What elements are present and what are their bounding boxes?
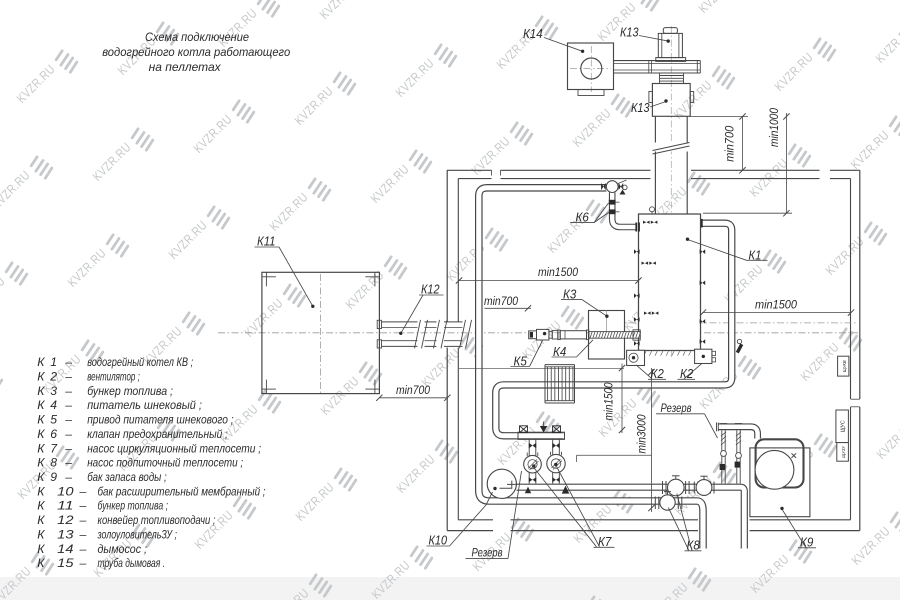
svg-text:конвейер топливоподачи ;: конвейер топливоподачи ; <box>98 513 216 527</box>
svg-text:ЩУЗУ: ЩУЗУ <box>841 445 846 458</box>
svg-text:К12: К12 <box>421 282 440 297</box>
svg-text:min1500: min1500 <box>538 265 578 279</box>
svg-text:бункер топлива ;: бункер топлива ; <box>98 499 169 513</box>
svg-text:–: – <box>79 542 87 556</box>
svg-text:–: – <box>64 456 72 470</box>
svg-text:на пеллетах: на пеллетах <box>149 60 222 74</box>
svg-text:насос циркуляционный теплосети: насос циркуляционный теплосети ; <box>87 441 261 455</box>
svg-text:min1000: min1000 <box>767 108 781 147</box>
svg-text:–: – <box>64 427 72 441</box>
svg-text:водогрейный котел КВ ;: водогрейный котел КВ ; <box>87 355 193 369</box>
svg-text:привод питателя шнекового ;: привод питателя шнекового ; <box>87 413 233 427</box>
svg-text:труба дымовая .: труба дымовая . <box>98 556 166 570</box>
svg-text:min700: min700 <box>484 294 518 308</box>
svg-text:–: – <box>64 470 72 484</box>
svg-text:дымосос ;: дымосос ; <box>98 542 148 556</box>
svg-text:К7: К7 <box>598 534 612 549</box>
svg-text:–: – <box>64 413 72 427</box>
svg-text:–: – <box>64 370 72 384</box>
svg-text:бункер топлива ;: бункер топлива ; <box>87 384 173 398</box>
svg-text:К13: К13 <box>620 25 639 40</box>
svg-text:min1500: min1500 <box>755 297 797 311</box>
svg-text:К11: К11 <box>257 234 276 249</box>
svg-text:–: – <box>79 527 87 541</box>
svg-text:бак запаса воды ;: бак запаса воды ; <box>87 470 167 484</box>
svg-text:min1500: min1500 <box>602 382 616 420</box>
svg-text:min3000: min3000 <box>635 414 649 453</box>
svg-text:Резерв: Резерв <box>472 548 503 560</box>
svg-text:вентилятор ;: вентилятор ; <box>87 370 140 384</box>
svg-text:золоуловительЗУ ;: золоуловительЗУ ; <box>97 527 177 541</box>
svg-text:Схема подключение: Схема подключение <box>145 30 249 44</box>
svg-text:ЩУКВ: ЩУКВ <box>842 360 847 372</box>
svg-text:–: – <box>79 484 87 498</box>
svg-text:–: – <box>64 441 72 455</box>
svg-text:К10: К10 <box>429 533 448 548</box>
svg-text:–: – <box>64 398 72 412</box>
svg-text:–: – <box>79 556 87 570</box>
svg-text:К2: К2 <box>680 366 694 381</box>
svg-text:водогрейного котла работающего: водогрейного котла работающего <box>102 45 290 59</box>
svg-text:питатель шнековый ;: питатель шнековый ; <box>87 398 202 412</box>
svg-text:–: – <box>79 499 87 513</box>
svg-text:–: – <box>79 513 87 527</box>
svg-text:К14: К14 <box>523 26 543 41</box>
svg-text:min700: min700 <box>396 383 430 397</box>
svg-text:min700: min700 <box>723 125 737 161</box>
svg-text:бак расширительный мембранный: бак расширительный мембранный ; <box>98 484 266 498</box>
svg-text:ЩУС: ЩУС <box>841 420 847 432</box>
svg-text:–: – <box>64 355 72 369</box>
svg-text:К13: К13 <box>631 100 650 115</box>
svg-text:Резерв: Резерв <box>661 403 692 415</box>
svg-text:насос подпиточный теплосети ;: насос подпиточный теплосети ; <box>87 456 243 470</box>
svg-text:клапан предохранительный ;: клапан предохранительный ; <box>87 427 228 441</box>
svg-text:–: – <box>64 384 72 398</box>
svg-text:К2: К2 <box>651 366 665 381</box>
